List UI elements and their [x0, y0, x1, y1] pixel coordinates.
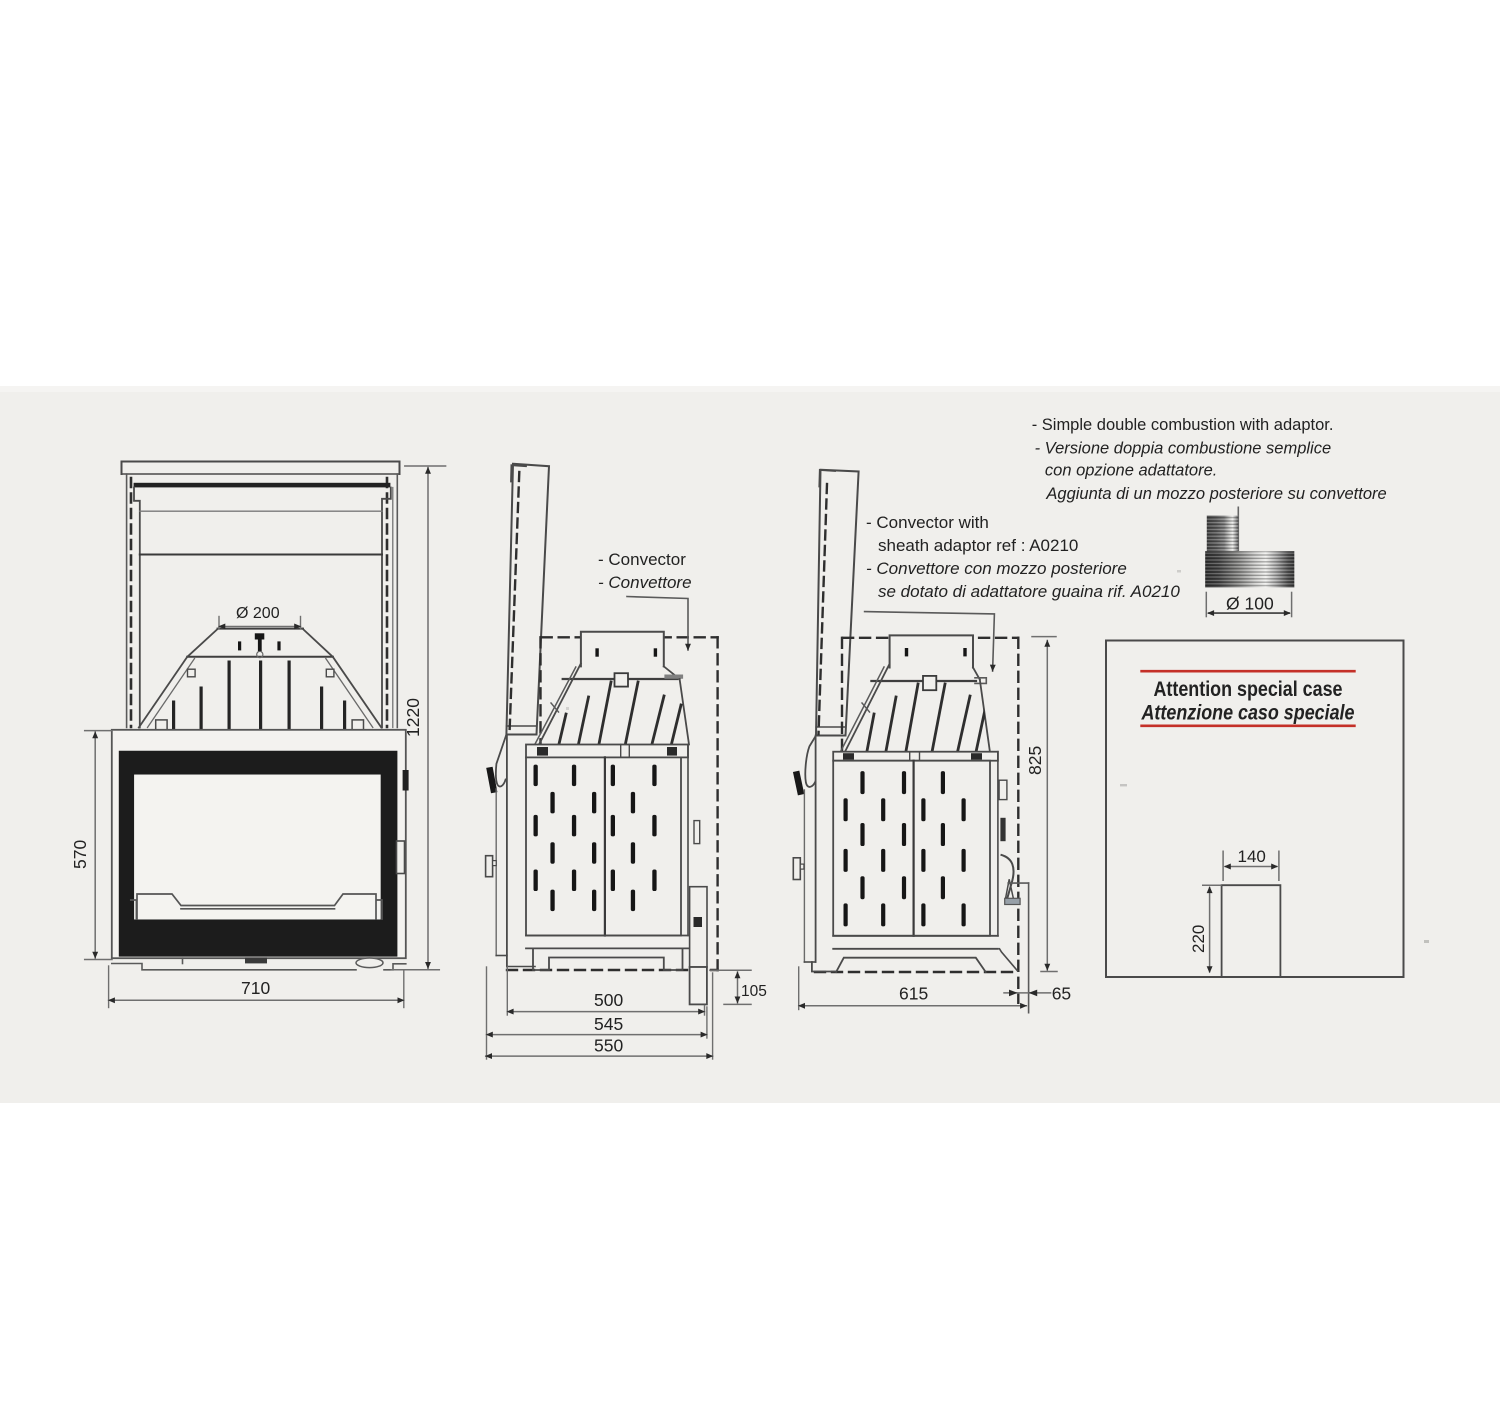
svg-text:825: 825 [1025, 746, 1045, 775]
svg-text:Aggiunta di un mozzo posterior: Aggiunta di un mozzo posteriore su conve… [1045, 485, 1386, 503]
svg-text:500: 500 [594, 990, 623, 1010]
svg-text:220: 220 [1189, 925, 1208, 953]
svg-text:- Convettore con mozzo poster: - Convettore con mozzo posteriore [866, 559, 1127, 578]
svg-text:- Convector with: - Convector with [866, 513, 989, 532]
svg-text:se dotato di adattatore guaina: se dotato di adattatore guaina rif. A021… [878, 582, 1180, 601]
svg-text:sheath adaptor ref : A0210: sheath adaptor ref : A0210 [878, 536, 1078, 555]
svg-text:- Convettore: - Convettore [598, 573, 692, 592]
svg-text:Attention special case: Attention special case [1154, 677, 1343, 701]
svg-text:- Convector: - Convector [598, 550, 686, 569]
svg-text:65: 65 [1052, 984, 1071, 1004]
svg-text:- Simple double combustion wit: - Simple double combustion with adaptor. [1032, 416, 1334, 434]
svg-text:140: 140 [1238, 847, 1266, 866]
svg-text:545: 545 [594, 1014, 623, 1034]
svg-text:710: 710 [241, 978, 270, 998]
svg-text:- Versione doppia combustione: - Versione doppia combustione semplice [1035, 439, 1332, 457]
svg-text:105: 105 [741, 983, 767, 1000]
svg-text:550: 550 [594, 1036, 623, 1056]
svg-text:con opzione adattatore.: con opzione adattatore. [1045, 461, 1217, 479]
svg-text:Ø 200: Ø 200 [236, 605, 280, 622]
svg-text:615: 615 [899, 984, 928, 1004]
svg-text:570: 570 [70, 840, 90, 869]
svg-text:1220: 1220 [403, 698, 423, 737]
svg-text:Attenzione caso speciale: Attenzione caso speciale [1141, 701, 1355, 725]
svg-text:Ø 100: Ø 100 [1226, 594, 1274, 614]
